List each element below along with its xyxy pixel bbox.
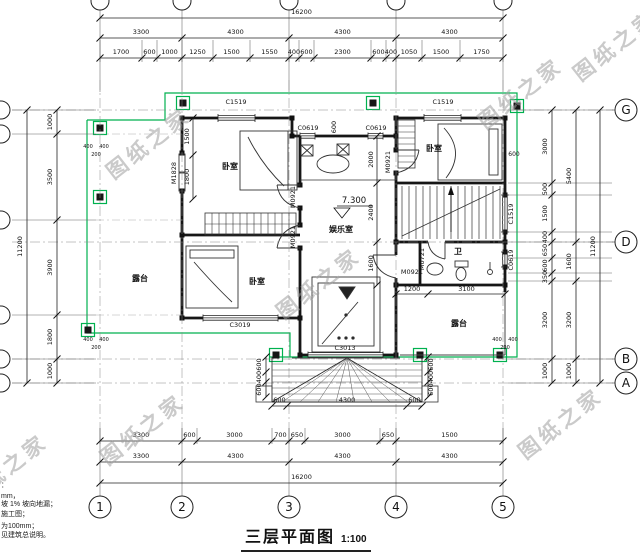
toilet <box>455 261 468 267</box>
axis-bubble-clipped <box>494 0 512 10</box>
dim-label: 1000 <box>161 48 178 56</box>
axis-bubble-label: G <box>621 103 630 117</box>
stair-direction-arrow <box>448 186 454 195</box>
door-label-m1828: M1828 <box>170 162 178 184</box>
dim-label: 600 <box>183 431 195 439</box>
bed-topleft <box>240 131 297 190</box>
axis-bubble-clipped <box>0 211 10 229</box>
dim-label: 1000 <box>46 363 54 380</box>
axis-bubble-clipped <box>0 125 10 143</box>
dim-label: 600 <box>300 48 312 56</box>
dim-label: 1500 <box>433 48 450 56</box>
construction-note-line: 见建筑总说明。 <box>1 531 50 541</box>
roof-hip <box>347 358 422 402</box>
axis-bubble-label: 4 <box>392 500 400 514</box>
door-label-m0921-a: M0921 <box>289 186 297 208</box>
dim-label: 2400 <box>367 204 375 221</box>
door-label-m0921-b: M0921 <box>289 226 297 248</box>
room-label-bath: 卫 <box>454 247 462 256</box>
dim-label: 1500 <box>541 205 549 222</box>
column-dim-label: 400 <box>83 337 93 343</box>
door-swing <box>373 255 396 278</box>
dim-label: 1600 <box>367 255 375 272</box>
dim-label: 5400 <box>565 168 573 185</box>
dim-label: 1750 <box>473 48 490 56</box>
dim-label: 3300 <box>133 28 150 36</box>
construction-note-line: 坡 1% 坡向地漏； <box>1 500 57 510</box>
dim-label: 1800 <box>183 169 191 186</box>
dim-label: 600 <box>330 121 338 133</box>
dim-label: 650 <box>291 431 303 439</box>
dim-label: 4300 <box>227 452 244 460</box>
dim-label: 2300 <box>334 48 351 56</box>
construction-note-line: 施工图； <box>1 510 29 520</box>
dim-label: 1500 <box>441 431 458 439</box>
dim-label: 600 <box>541 259 549 271</box>
column-dim-label: 200 <box>91 345 101 351</box>
axis-bubble-label: 3 <box>285 500 293 514</box>
dim-label: 600 <box>143 48 155 56</box>
dim-label: 3300 <box>133 431 150 439</box>
column-dim-label: 400 <box>508 337 518 343</box>
column-dim-label: 400 <box>492 337 502 343</box>
window-label-c0619-side: C0619 <box>507 249 515 270</box>
dim-label: 600 <box>427 358 435 370</box>
tub <box>317 155 349 173</box>
dim-label: 1000 <box>565 363 573 380</box>
dim-label: 4300 <box>334 452 351 460</box>
axis-bubble-label: 5 <box>499 500 507 514</box>
axis-bubble-label: 2 <box>178 500 186 514</box>
dim-label: 3500 <box>46 169 54 186</box>
room-label-terrace-br: 露台 <box>451 318 467 328</box>
dim-label: 4300 <box>334 28 351 36</box>
dim-label: 3100 <box>458 285 475 293</box>
window-label-c3019: C3019 <box>229 321 250 329</box>
dim-label: 4300 <box>441 452 458 460</box>
dim-label: 400 <box>288 48 300 56</box>
dim-label: 3000 <box>226 431 243 439</box>
green-outline-left <box>87 120 290 357</box>
dim-label: 350 <box>541 271 549 283</box>
axis-bubble-label: B <box>622 352 630 366</box>
dim-label: 4300 <box>441 28 458 36</box>
roof-fan-line <box>282 358 347 402</box>
room-label-hall: 娱乐室 <box>329 224 353 234</box>
column-dim-label: 400 <box>99 144 109 150</box>
axis-bubble-clipped <box>0 374 10 392</box>
axis-bubble-clipped <box>173 0 191 10</box>
axis-bubble-label: 1 <box>96 500 104 514</box>
window-label-c1519-a: C1519 <box>225 98 246 106</box>
dim-label: 1000 <box>46 114 54 131</box>
dim-label: 16200 <box>291 473 312 481</box>
door-label-m0921-c: M0921 <box>384 151 392 173</box>
dim-label: 600 <box>508 151 520 158</box>
sink <box>427 263 443 275</box>
dim-label: 3300 <box>133 452 150 460</box>
door-swing <box>396 150 419 173</box>
dim-label: 1250 <box>189 48 206 56</box>
column-dim-label: 200 <box>91 152 101 158</box>
dim-label: 4300 <box>227 28 244 36</box>
dim-label: 400 <box>427 371 435 383</box>
construction-note-line: ： <box>1 481 8 491</box>
dim-label: 2000 <box>367 151 375 168</box>
floor-plan-drawing: 1620033004300430043001700600100012501500… <box>0 0 640 557</box>
dim-label: 400 <box>541 231 549 243</box>
room-label-terrace-left: 露台 <box>132 273 148 283</box>
floor-plan-canvas: 1620033004300430043001700600100012501500… <box>0 0 640 557</box>
window-label-c1519-side: C1519 <box>507 203 515 224</box>
dim-label: 650 <box>382 431 394 439</box>
dim-label: 3000 <box>334 431 351 439</box>
window-label-c0619-a: C0619 <box>297 124 318 132</box>
axis-bubble-label: A <box>622 376 631 390</box>
dim-label: 1600 <box>565 253 573 270</box>
room-label-bedroom-tr: 卧室 <box>426 143 442 153</box>
elevation-value: 7.300 <box>342 196 366 206</box>
column-dim-label: 400 <box>99 337 109 343</box>
bed-bottomleft <box>186 246 238 308</box>
dim-label: 11200 <box>589 236 597 257</box>
dim-label: 1550 <box>261 48 278 56</box>
roof-fan-line <box>347 358 408 402</box>
dim-label: 400 <box>385 48 397 56</box>
window-label-c0619-b: C0619 <box>365 124 386 132</box>
dim-label: 600 <box>255 358 263 370</box>
axis-bubble-clipped <box>91 0 109 10</box>
axis-bubble-clipped <box>387 0 405 10</box>
dim-label: 1800 <box>46 329 54 346</box>
window-label-c1519-b: C1519 <box>432 98 453 106</box>
dim-label: 3000 <box>541 138 549 155</box>
dim-label: 500 <box>541 183 549 195</box>
dim-label: 3200 <box>565 312 573 329</box>
dim-label: 700 <box>274 431 286 439</box>
axis-bubble-label: D <box>621 235 630 249</box>
dim-label: 650 <box>541 244 549 256</box>
column-dim-label: 400 <box>83 144 93 150</box>
drawing-title: 三层平面图1:100 <box>241 523 371 552</box>
room-label-bedroom-tl: 卧室 <box>222 161 238 171</box>
door-swing <box>428 242 445 259</box>
dim-label: 1050 <box>401 48 418 56</box>
dim-label: 3200 <box>541 312 549 329</box>
dim-label: 11200 <box>16 236 24 257</box>
generated-linework: 1620033004300430043001700600100012501500… <box>0 0 637 518</box>
floor-drain <box>488 270 493 275</box>
dim-label: 3900 <box>46 259 54 276</box>
roof-hip <box>272 358 347 402</box>
dim-label: 1000 <box>541 363 549 380</box>
axis-bubble-clipped <box>0 350 10 368</box>
dim-label: 1500 <box>183 128 191 145</box>
dim-label: 1500 <box>223 48 240 56</box>
dim-label: 600 <box>427 383 435 395</box>
dim-label: 1700 <box>113 48 130 56</box>
door-label-m0721: M0721 <box>418 248 426 270</box>
column-dim-label: 200 <box>500 345 510 351</box>
dim-label: 600 <box>372 48 384 56</box>
terrace-edges <box>292 292 505 358</box>
axis-bubble-clipped <box>0 101 10 119</box>
dim-label: 400 <box>255 371 263 383</box>
drawing-scale: 1:100 <box>341 534 367 545</box>
drawing-title-text: 三层平面图 <box>245 529 335 546</box>
dim-label: 16200 <box>291 8 312 16</box>
dim-label: 1200 <box>404 285 421 293</box>
axis-bubble-clipped <box>0 306 10 324</box>
room-label-bedroom-bl: 卧室 <box>249 276 265 286</box>
window-label-c3013: C3013 <box>334 344 355 352</box>
